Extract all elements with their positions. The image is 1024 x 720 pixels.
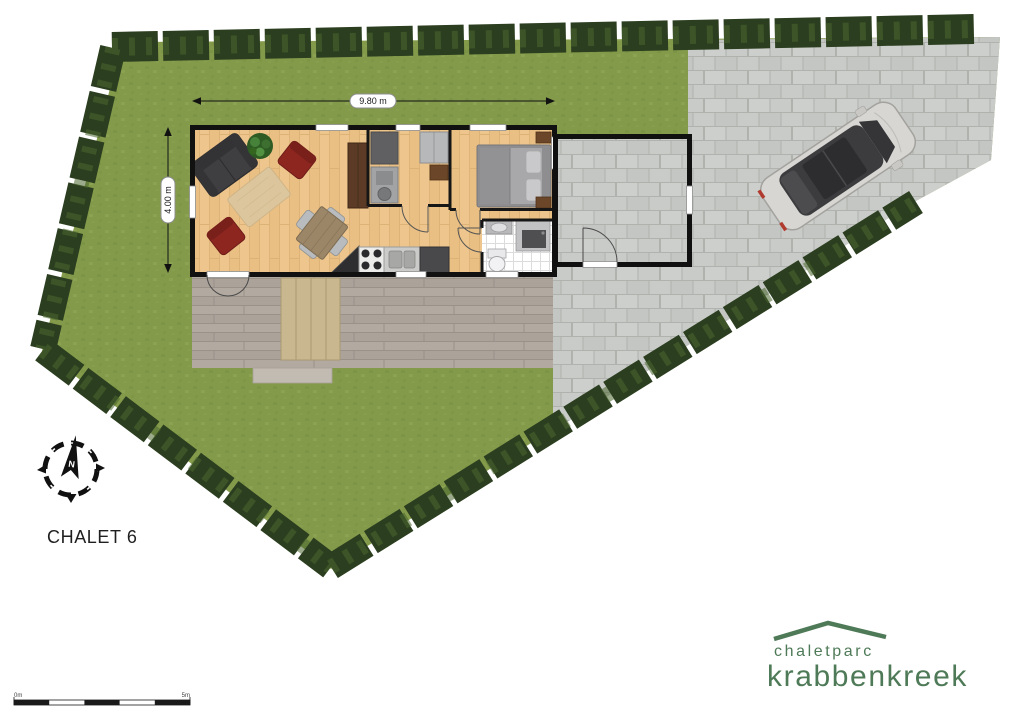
hedge-top xyxy=(112,29,976,47)
courtyard-door-opening xyxy=(583,262,617,268)
compass-tick-west xyxy=(37,465,46,474)
logo-line1: chaletparc xyxy=(774,643,1002,661)
north-label: N xyxy=(68,459,76,470)
scale-zero-label: 0m xyxy=(14,693,22,699)
window-bedroom-top xyxy=(470,125,506,131)
terrace-table xyxy=(281,278,340,360)
fridge xyxy=(420,247,449,273)
storage-courtyard xyxy=(556,137,693,268)
terrace-step xyxy=(253,368,332,383)
washing-machine xyxy=(371,167,398,203)
dimension-width-label: 9.80 m xyxy=(359,96,387,106)
plan-title: CHALET 6 xyxy=(47,527,138,548)
window-living-left xyxy=(190,186,196,218)
utility-shelf xyxy=(430,165,448,180)
compass-tick-south xyxy=(66,494,77,503)
utility-cabinet xyxy=(420,132,448,163)
window-living-top xyxy=(316,125,348,131)
scale-bar: 0m 5m xyxy=(14,693,190,705)
utility-tall-appliance xyxy=(371,132,398,164)
houseplant xyxy=(247,133,273,159)
logo: chaletparc krabbenkreek xyxy=(767,619,1002,692)
bathroom xyxy=(482,220,553,273)
compass-rose: N xyxy=(37,434,105,503)
washbasin xyxy=(486,221,512,234)
kitchen-sink xyxy=(384,247,420,273)
site-plan-page: 9.80 m 4.00 m N 0m 5m CHALET 6 xyxy=(0,0,1024,720)
logo-line2: krabbenkreek xyxy=(767,661,1002,693)
site-plan-svg: 9.80 m 4.00 m N 0m 5m xyxy=(0,0,1024,720)
tv-cabinet xyxy=(348,143,368,208)
terrace-door-opening xyxy=(207,272,249,278)
courtyard-window xyxy=(687,186,693,214)
nightstand-top xyxy=(536,132,551,143)
compass-tick-east xyxy=(96,464,105,473)
window-bathroom-bottom xyxy=(486,272,518,278)
logo-roof-icon xyxy=(771,619,891,642)
dimension-height-label: 4.00 m xyxy=(163,186,173,214)
window-kitchen-bottom xyxy=(396,272,426,278)
shower-unit xyxy=(516,221,550,251)
window-utility-top xyxy=(396,125,420,131)
terrace-decking xyxy=(192,275,553,368)
nightstand-bottom xyxy=(536,197,551,208)
scale-five-label: 5m xyxy=(182,693,190,699)
stove xyxy=(359,247,384,273)
toilet xyxy=(488,249,506,272)
